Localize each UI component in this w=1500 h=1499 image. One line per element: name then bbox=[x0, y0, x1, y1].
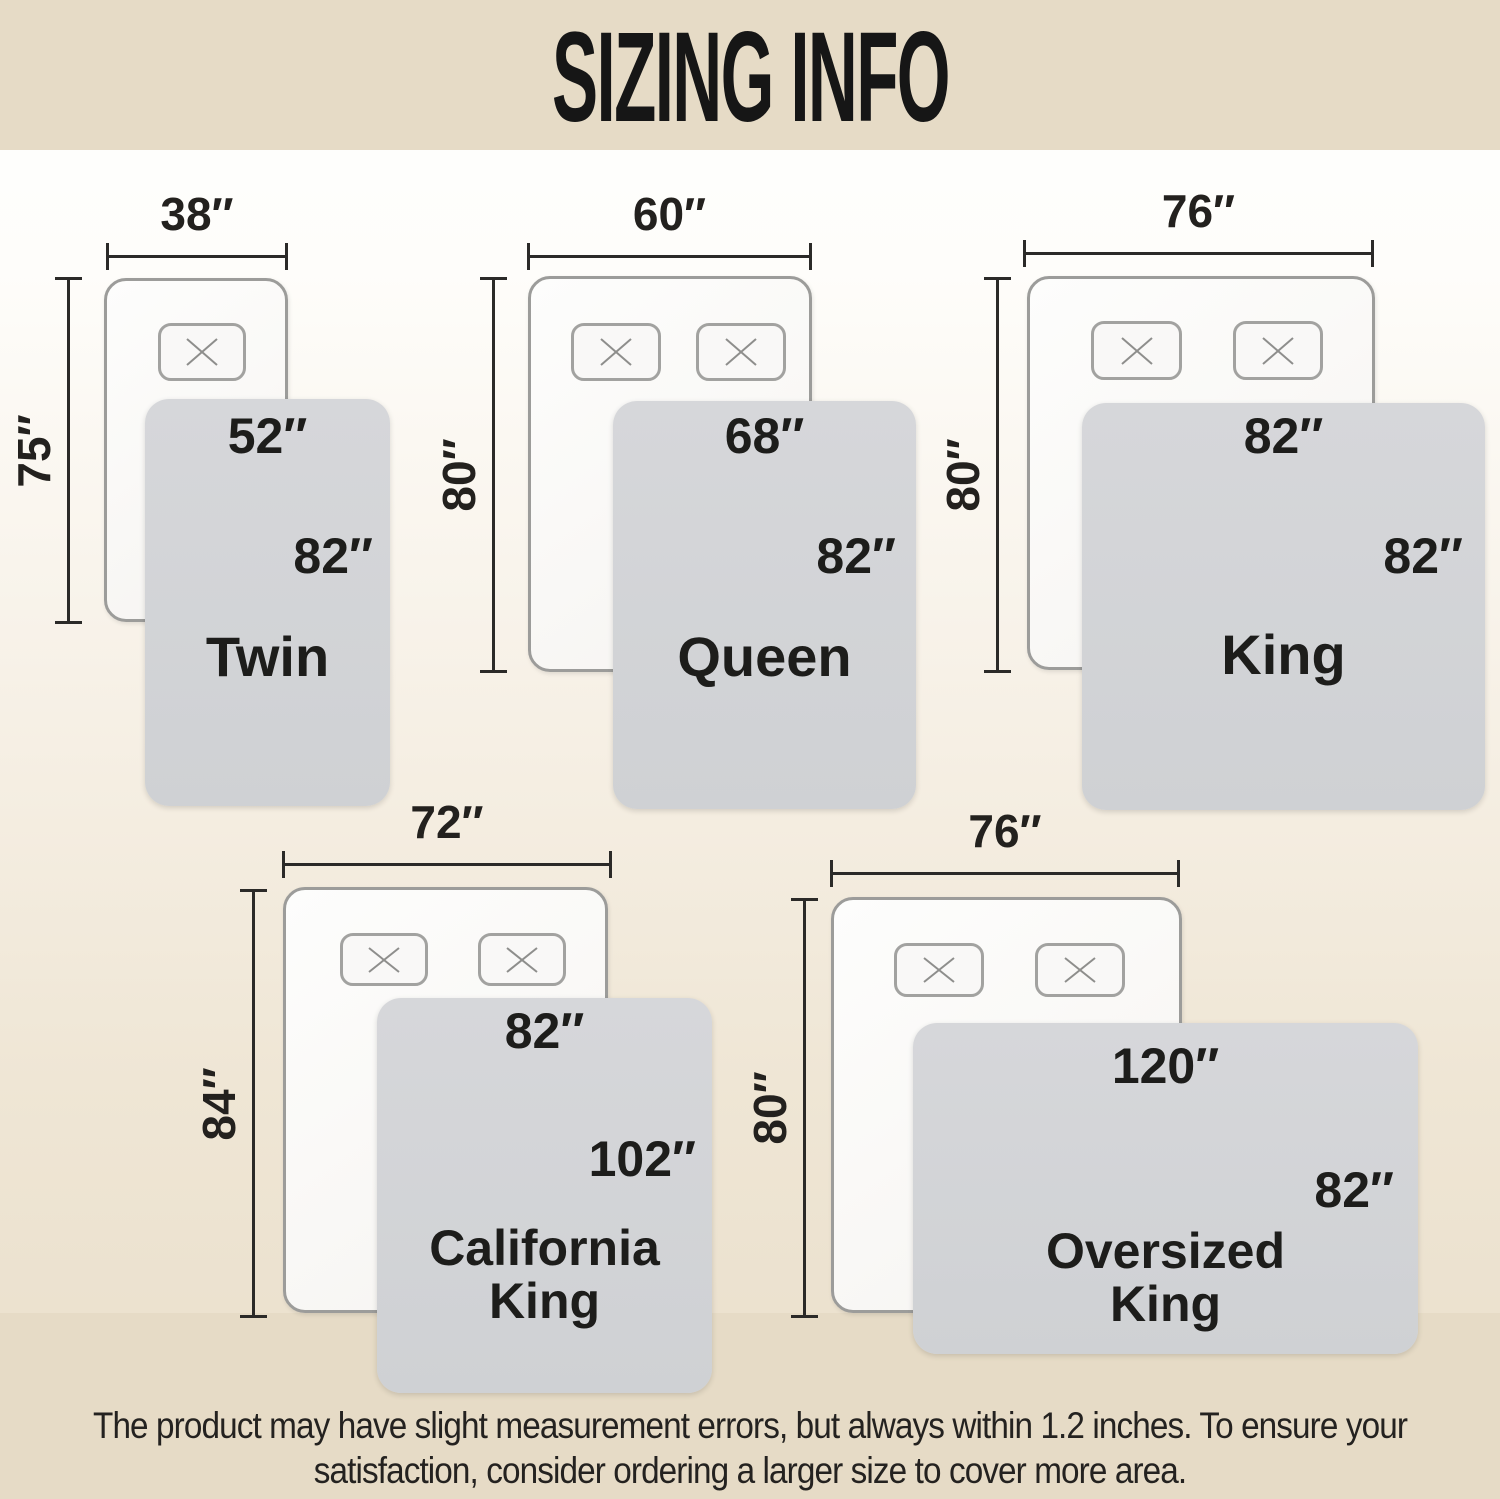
pillow bbox=[340, 933, 428, 986]
dimension-line bbox=[252, 890, 255, 1317]
blanket: 82″ 102″ California King bbox=[377, 998, 712, 1393]
bed-length-dimension: 75″ bbox=[0, 278, 70, 623]
pillow bbox=[696, 323, 786, 381]
bed-length-dimension: 80″ bbox=[736, 899, 806, 1317]
disclaimer-line-2: satisfaction, consider ordering a larger… bbox=[93, 1449, 1407, 1493]
bed-length-dimension: 80″ bbox=[425, 278, 495, 672]
dimension-line bbox=[996, 278, 999, 672]
pillow-x-icon bbox=[723, 336, 759, 368]
dimension-line bbox=[830, 872, 1180, 875]
dimension-line bbox=[106, 255, 288, 258]
bed-width-dimension: 76″ bbox=[830, 808, 1180, 888]
bed-width-label: 38″ bbox=[106, 191, 288, 237]
dimension-line bbox=[803, 899, 806, 1317]
blanket-width-label: 52″ bbox=[145, 411, 390, 461]
blanket-width-label: 82″ bbox=[1082, 411, 1485, 461]
bed-length-label: 80″ bbox=[940, 438, 986, 511]
header-banner: SIZING INFO bbox=[0, 0, 1500, 150]
dimension-line bbox=[1023, 252, 1374, 255]
bed-length-label: 75″ bbox=[11, 414, 57, 487]
bed-length-label: 84″ bbox=[196, 1067, 242, 1140]
pillow-x-icon bbox=[921, 955, 957, 985]
blanket-width-label: 68″ bbox=[613, 411, 916, 461]
blanket-length-label: 82″ bbox=[293, 531, 373, 581]
pillow bbox=[1233, 321, 1323, 380]
size-name-label: Twin bbox=[145, 627, 390, 686]
bed-width-label: 76″ bbox=[830, 808, 1180, 854]
bed-width-dimension: 72″ bbox=[282, 799, 612, 879]
bed-width-dimension: 76″ bbox=[1023, 188, 1374, 268]
page-title: SIZING INFO bbox=[552, 8, 949, 142]
size-name-label: California King bbox=[390, 1222, 700, 1328]
bed-length-dimension: 84″ bbox=[185, 890, 255, 1317]
dimension-line bbox=[492, 278, 495, 672]
blanket-length-label: 82″ bbox=[1383, 531, 1463, 581]
bed-length-label: 80″ bbox=[436, 438, 482, 511]
disclaimer-text: The product may have slight measurement … bbox=[93, 1404, 1407, 1493]
pillow-x-icon bbox=[1119, 335, 1155, 367]
size-name-label: Oversized King bbox=[1016, 1225, 1316, 1331]
pillow-x-icon bbox=[184, 336, 220, 368]
pillow-x-icon bbox=[1260, 335, 1296, 367]
blanket-length-label: 102″ bbox=[589, 1134, 696, 1184]
bed-width-label: 60″ bbox=[527, 191, 812, 237]
blanket: 120″ 82″ Oversized King bbox=[913, 1023, 1418, 1354]
blanket: 68″ 82″ Queen bbox=[613, 401, 916, 809]
bed-width-dimension: 38″ bbox=[106, 191, 288, 271]
pillow bbox=[571, 323, 661, 381]
blanket: 52″ 82″ Twin bbox=[145, 399, 390, 806]
bed-width-dimension: 60″ bbox=[527, 191, 812, 271]
dimension-line bbox=[527, 255, 812, 258]
size-name-label: King bbox=[1082, 625, 1485, 684]
pillow bbox=[1091, 321, 1182, 380]
dimension-line bbox=[282, 863, 612, 866]
size-name-label: Queen bbox=[613, 627, 916, 686]
pillow bbox=[158, 323, 246, 381]
dimension-line bbox=[67, 278, 70, 623]
bed-length-label: 80″ bbox=[747, 1071, 793, 1144]
pillow bbox=[894, 943, 984, 997]
pillow bbox=[478, 933, 566, 986]
sizing-infographic: SIZING INFO 38″ 75″ 52″ 82″ Twin 60″ bbox=[0, 0, 1500, 1499]
pillow-x-icon bbox=[598, 336, 634, 368]
pillow-x-icon bbox=[366, 945, 402, 975]
blanket: 82″ 82″ King bbox=[1082, 403, 1485, 810]
bed-width-label: 76″ bbox=[1023, 188, 1374, 234]
disclaimer-line-1: The product may have slight measurement … bbox=[93, 1404, 1407, 1448]
pillow-x-icon bbox=[1062, 955, 1098, 985]
blanket-length-label: 82″ bbox=[1314, 1165, 1394, 1215]
pillow-x-icon bbox=[504, 945, 540, 975]
blanket-width-label: 82″ bbox=[377, 1006, 712, 1056]
blanket-width-label: 120″ bbox=[913, 1041, 1418, 1091]
bed-length-dimension: 80″ bbox=[929, 278, 999, 672]
pillow bbox=[1035, 943, 1125, 997]
blanket-length-label: 82″ bbox=[816, 531, 896, 581]
